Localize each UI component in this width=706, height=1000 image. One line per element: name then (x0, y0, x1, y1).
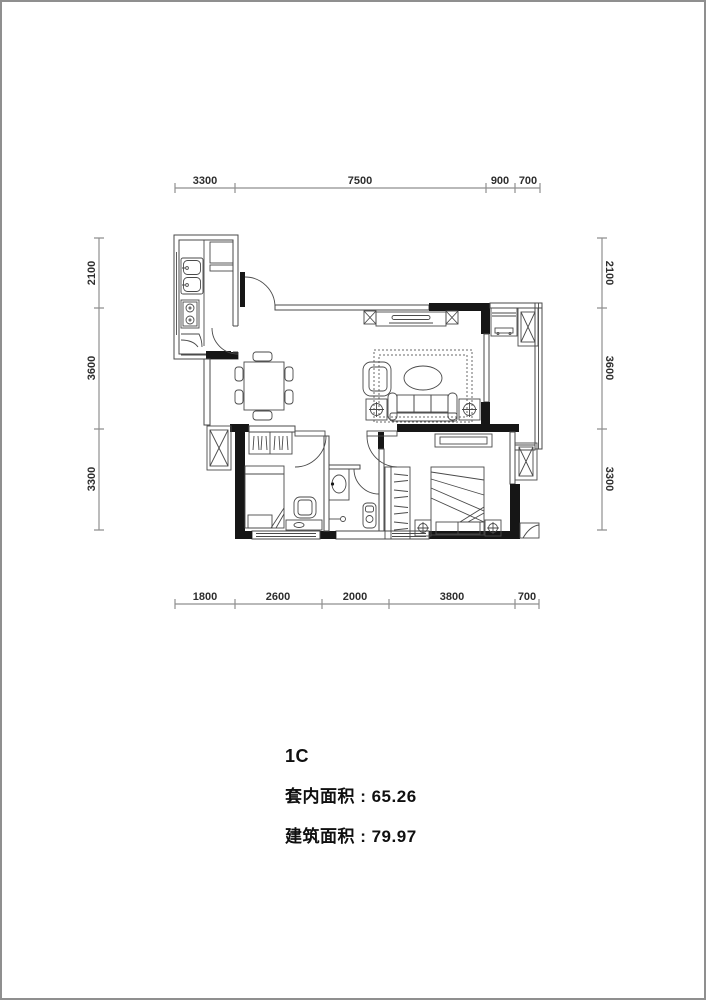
entry (240, 272, 275, 307)
single-bed (245, 466, 284, 528)
wardrobe-master (385, 467, 410, 539)
dining-chair (285, 390, 293, 404)
dim-label: 700 (519, 175, 537, 187)
dim-label: 2100 (603, 261, 615, 285)
coffee-table (404, 366, 442, 390)
dim-label: 1800 (193, 591, 217, 603)
kitchen-sink (181, 258, 203, 294)
dim-label: 3600 (603, 356, 615, 380)
tv (392, 316, 430, 320)
shaft-box-right (515, 443, 537, 480)
sofa (388, 393, 457, 421)
fridge (210, 242, 233, 263)
plan-info: 1C 套内面积 : 65.26 建筑面积 : 79.97 (285, 746, 417, 847)
dining-area (235, 352, 293, 420)
dining-table (244, 362, 284, 410)
bathroom-door-arc (354, 469, 379, 494)
bedroom2-door-leaf (295, 431, 325, 436)
armchair (363, 362, 391, 396)
floor-plan-drawing: 3300 7500 900 700 1800 2600 2000 3800 70… (2, 2, 706, 1000)
dimension-top: 3300 7500 900 700 (175, 175, 540, 193)
stove (181, 300, 199, 328)
dim-label: 3300 (603, 467, 615, 491)
walls (230, 303, 542, 539)
washing-machine (491, 308, 517, 336)
balcony (491, 308, 517, 336)
dining-chair (253, 411, 272, 420)
dimension-bottom: 1800 2600 2000 3800 700 (175, 591, 539, 609)
tv-cabinet (364, 311, 458, 326)
dim-label: 2100 (86, 261, 98, 285)
kitchen (174, 235, 240, 359)
bedroom-master (385, 434, 501, 539)
dimension-right: 2100 3600 3300 (597, 238, 615, 530)
wall-below-kitchen (204, 359, 210, 425)
side-table-lamp (459, 399, 480, 420)
dining-chair (285, 367, 293, 381)
dim-label: 2600 (266, 591, 290, 603)
dimension-left: 2100 3600 3300 (86, 238, 104, 530)
wardrobe (249, 432, 292, 454)
corner-ledge (520, 523, 539, 538)
dim-label: 900 (491, 175, 509, 187)
inner-area-text: 套内面积 : 65.26 (285, 782, 417, 807)
balcony-glass-door (484, 334, 489, 402)
corner-counter (181, 334, 202, 347)
dim-label: 3300 (86, 467, 98, 491)
shaft-box-left (207, 426, 231, 470)
dim-label: 3600 (86, 356, 98, 380)
tv-cabinet-master (435, 434, 492, 447)
bedroom2-door-arc (295, 436, 326, 467)
living-room (363, 311, 480, 422)
dim-label: 2000 (343, 591, 367, 603)
gross-area-text: 建筑面积 : 79.97 (285, 822, 417, 847)
dining-chair (235, 367, 243, 381)
desk-chair (286, 497, 322, 530)
entry-door-arc (245, 277, 275, 307)
dim-label: 7500 (348, 175, 372, 187)
dim-label: 3300 (193, 175, 217, 187)
plan-title: 1C (285, 746, 417, 767)
wall-segment (240, 272, 245, 307)
bathroom-sink (329, 469, 349, 500)
shaft-box-balcony (518, 308, 538, 346)
bathroom (329, 469, 376, 528)
dining-chair (253, 352, 272, 361)
floor-plan-page: 3300 7500 900 700 1800 2600 2000 3800 70… (0, 0, 706, 1000)
dim-label: 700 (518, 591, 536, 603)
double-bed (431, 467, 484, 535)
toilet (363, 503, 376, 528)
dining-chair (235, 390, 243, 404)
bedroom-secondary (245, 432, 322, 530)
dim-label: 3800 (440, 591, 464, 603)
